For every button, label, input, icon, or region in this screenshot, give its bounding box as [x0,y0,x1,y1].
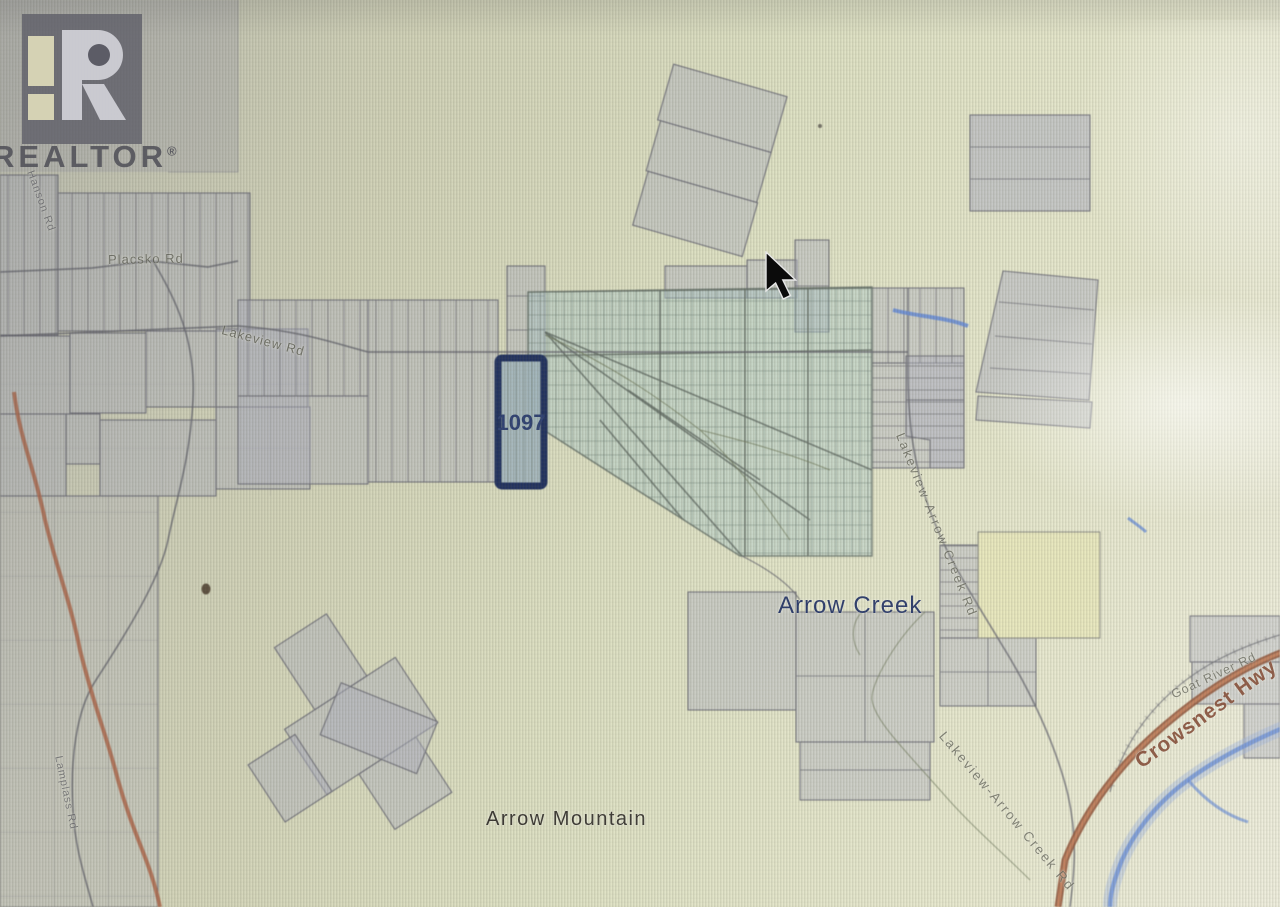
corner-parcel-wash [0,0,238,172]
screen-speck [202,584,211,595]
arrow-mountain-label: Arrow Mountain [486,808,647,831]
mouse-cursor-icon [765,251,799,303]
placsko-rd-label: Placsko Rd [108,251,184,267]
screen-speck-small [818,124,822,128]
parcel-map[interactable] [0,0,1280,907]
arrow-creek-label: Arrow Creek [778,592,922,620]
subdivision-fan [528,287,872,557]
selected-parcel-number-label: 1097 [492,410,550,436]
screen-photo: 1097 Arrow Creek Arrow Mountain Crowsnes… [0,0,1280,907]
